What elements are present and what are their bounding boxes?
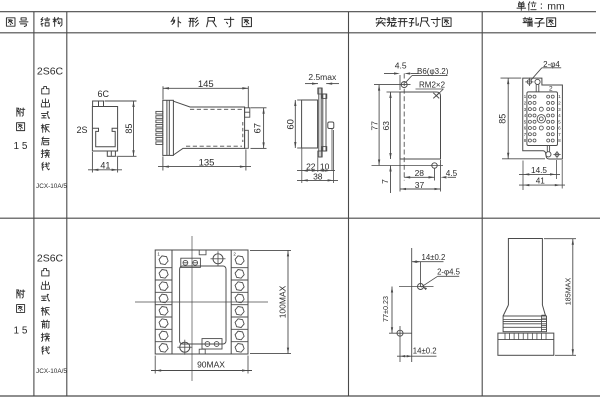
svg-text:8: 8 — [558, 138, 561, 143]
svg-text:67: 67 — [253, 123, 264, 134]
svg-text:85: 85 — [124, 124, 134, 134]
svg-text:5: 5 — [524, 119, 527, 124]
svg-text:60: 60 — [286, 119, 297, 130]
svg-text:2-φ4.5: 2-φ4.5 — [437, 267, 460, 276]
svg-text:4.5: 4.5 — [446, 169, 458, 178]
svg-text:6: 6 — [558, 126, 561, 131]
svg-text:63: 63 — [381, 121, 391, 131]
svg-text:JCX-10A/5: JCX-10A/5 — [36, 183, 67, 190]
svg-text:JCX-10A/5: JCX-10A/5 — [36, 368, 67, 375]
svg-text:3: 3 — [558, 107, 561, 112]
svg-text:77: 77 — [369, 121, 379, 131]
svg-text:4: 4 — [524, 113, 527, 118]
svg-text:4.5: 4.5 — [395, 60, 407, 70]
svg-text:2S6C: 2S6C — [37, 253, 64, 265]
svg-text:mm: mm — [547, 1, 565, 13]
svg-text:6: 6 — [524, 126, 527, 131]
svg-text:2S6C: 2S6C — [37, 65, 64, 77]
svg-text:77±0.23: 77±0.23 — [381, 296, 390, 322]
svg-text:100MAX: 100MAX — [277, 285, 287, 318]
svg-text:85: 85 — [498, 114, 508, 124]
svg-text:2: 2 — [233, 251, 236, 256]
svg-text:145: 145 — [198, 79, 214, 90]
svg-text:4: 4 — [558, 113, 561, 118]
svg-text:185MAX: 185MAX — [564, 278, 573, 306]
svg-text:90MAX: 90MAX — [197, 360, 225, 370]
svg-text:6C: 6C — [98, 89, 110, 99]
svg-text:7: 7 — [524, 132, 527, 137]
svg-text:B6(φ3.2): B6(φ3.2) — [417, 67, 449, 76]
svg-text:5: 5 — [558, 119, 561, 124]
svg-text:10: 10 — [320, 162, 330, 172]
svg-text:1: 1 — [558, 94, 561, 99]
svg-text:14±0.2: 14±0.2 — [413, 346, 437, 355]
svg-text:37: 37 — [415, 180, 425, 190]
svg-text:2S: 2S — [76, 125, 87, 135]
svg-text:41: 41 — [100, 161, 110, 171]
svg-text:1 5: 1 5 — [14, 141, 28, 152]
svg-text:14.5: 14.5 — [531, 166, 547, 175]
svg-text:38: 38 — [313, 172, 323, 182]
svg-text:8: 8 — [524, 138, 527, 143]
svg-text:41: 41 — [536, 176, 546, 185]
svg-text:7: 7 — [558, 132, 561, 137]
svg-text:1: 1 — [524, 94, 527, 99]
svg-text:2.5max: 2.5max — [308, 72, 337, 82]
svg-text:1: 1 — [157, 251, 160, 256]
svg-text:22: 22 — [306, 162, 316, 172]
svg-text:3: 3 — [524, 107, 527, 112]
svg-text:2: 2 — [558, 100, 561, 105]
svg-text:2: 2 — [524, 100, 527, 105]
svg-text:14±0.2: 14±0.2 — [422, 253, 446, 262]
svg-text:1 5: 1 5 — [14, 325, 28, 336]
svg-text:135: 135 — [199, 157, 215, 168]
svg-text:RM2×2: RM2×2 — [419, 80, 446, 89]
svg-text:28: 28 — [415, 168, 425, 178]
svg-text:7: 7 — [380, 179, 390, 184]
